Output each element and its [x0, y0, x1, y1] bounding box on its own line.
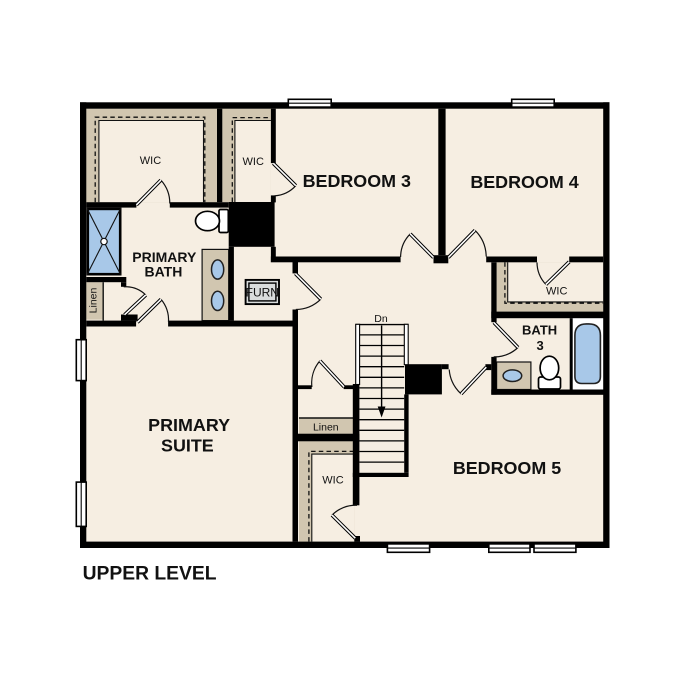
svg-text:Linen: Linen [313, 422, 339, 434]
svg-text:FURN: FURN [246, 285, 279, 299]
svg-text:WIC: WIC [546, 286, 567, 298]
svg-text:WIC: WIC [243, 156, 264, 168]
svg-text:3: 3 [536, 338, 543, 353]
svg-text:BATH: BATH [522, 323, 557, 338]
svg-text:WIC: WIC [140, 155, 161, 167]
svg-text:PRIMARY: PRIMARY [132, 249, 197, 265]
svg-text:Dn: Dn [374, 313, 388, 325]
svg-text:WIC: WIC [322, 475, 343, 487]
svg-text:Linen: Linen [88, 288, 100, 314]
svg-text:PRIMARY: PRIMARY [148, 415, 230, 435]
svg-text:BEDROOM 4: BEDROOM 4 [470, 172, 578, 192]
svg-text:UPPER LEVEL: UPPER LEVEL [83, 564, 217, 585]
svg-text:BEDROOM 3: BEDROOM 3 [303, 171, 411, 191]
svg-text:BEDROOM 5: BEDROOM 5 [453, 458, 561, 478]
svg-text:SUITE: SUITE [161, 435, 214, 455]
svg-text:BATH: BATH [144, 264, 182, 280]
